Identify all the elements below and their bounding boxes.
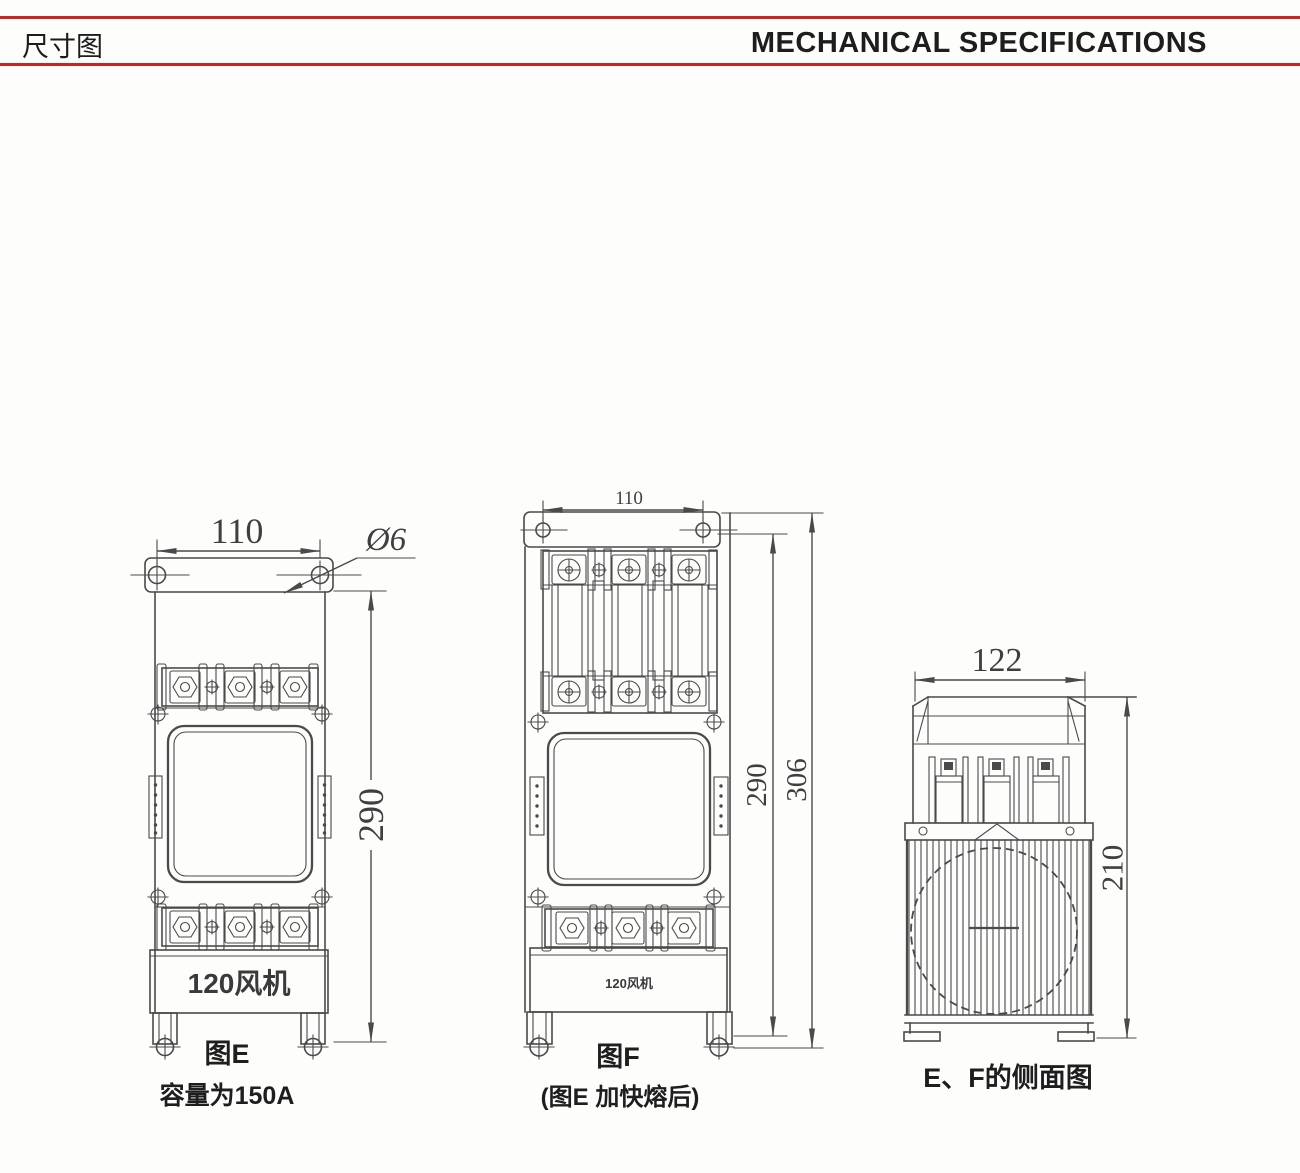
figure-f-fan-box: 120风机 [530, 948, 727, 1012]
figure-e-corner-screws-bottom [148, 888, 332, 907]
figure-f-width-label: 110 [615, 488, 643, 509]
figure-f-side-connectors [530, 777, 728, 835]
figure-e-caption: 图E [204, 1039, 249, 1069]
side-view-base [904, 1023, 1094, 1041]
side-view-caption: E、F的侧面图 [923, 1062, 1093, 1093]
figure-e-hole-label: Ø6 [365, 522, 407, 558]
figure-f-mounting-bracket [521, 512, 737, 547]
figure-f-height-label-inner: 290 [741, 763, 773, 807]
figure-f-width-dimension: 110 [543, 488, 703, 523]
figure-e-bottom-terminal-strip [157, 904, 318, 950]
side-view-width-dimension: 122 [915, 642, 1085, 701]
spec-sheet-page: 尺寸图 MECHANICAL SPECIFICATIONS 110 Ø6 [0, 0, 1300, 1173]
figure-e-width-label: 110 [211, 511, 264, 551]
figure-e-side-connectors [149, 776, 331, 838]
figure-f-corner-screws-top [528, 713, 724, 732]
figure-e-height-dimension: 290 [334, 591, 391, 1042]
figure-f-subcaption: (图E 加快熔后) [541, 1083, 700, 1111]
figure-e-body [155, 592, 325, 1012]
side-view-drawing: 122 [904, 642, 1136, 1093]
side-view-top-housing [913, 697, 1136, 823]
figure-e-window [168, 726, 312, 882]
figure-f-fuse-block [541, 549, 717, 713]
figure-e-subcaption: 容量为150A [160, 1081, 295, 1110]
side-view-height-dimension: 210 [1095, 697, 1137, 1038]
figure-f-corner-screws-bottom [525, 888, 730, 907]
figure-e-fan-label: 120风机 [188, 968, 291, 999]
figure-f-fan-label: 120风机 [605, 976, 653, 991]
side-view-heatsink-plate [905, 823, 1093, 840]
side-view-width-label: 122 [972, 642, 1023, 679]
figure-f-drawing: 110 [521, 488, 823, 1111]
figure-e-fan-box: 120风机 [150, 950, 328, 1013]
side-view-terminals [929, 757, 1069, 823]
mechanical-drawings: 110 Ø6 [0, 0, 1300, 1173]
figure-e-top-terminal-strip [155, 664, 325, 710]
figure-f-caption: 图F [596, 1042, 640, 1072]
figure-f-height-label-outer: 306 [781, 758, 813, 802]
figure-e-mounting-bracket [131, 558, 361, 592]
figure-f-window [548, 733, 710, 885]
figure-e-drawing: 110 Ø6 [131, 511, 415, 1110]
figure-f-bottom-terminal-strip [542, 905, 715, 951]
side-view-height-label: 210 [1095, 845, 1130, 892]
side-view-fan-outline [911, 848, 1077, 1014]
figure-e-height-label: 290 [351, 788, 391, 842]
